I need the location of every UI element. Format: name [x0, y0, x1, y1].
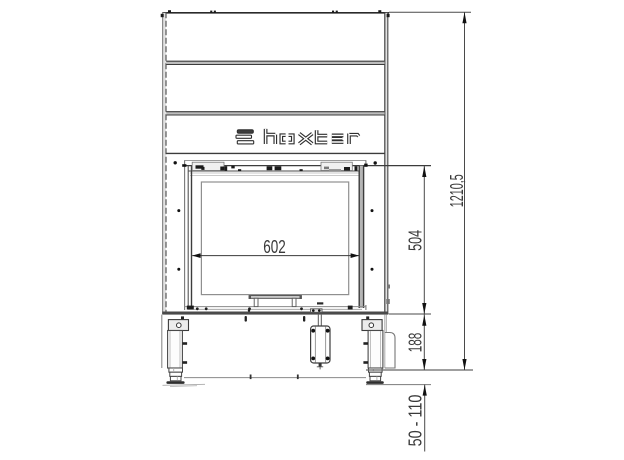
svg-text:602: 602 [263, 237, 286, 258]
svg-text:188: 188 [406, 333, 426, 353]
svg-text:1210,5: 1210,5 [447, 174, 468, 207]
svg-text:504: 504 [406, 230, 426, 251]
svg-text:50 - 110: 50 - 110 [405, 395, 426, 447]
